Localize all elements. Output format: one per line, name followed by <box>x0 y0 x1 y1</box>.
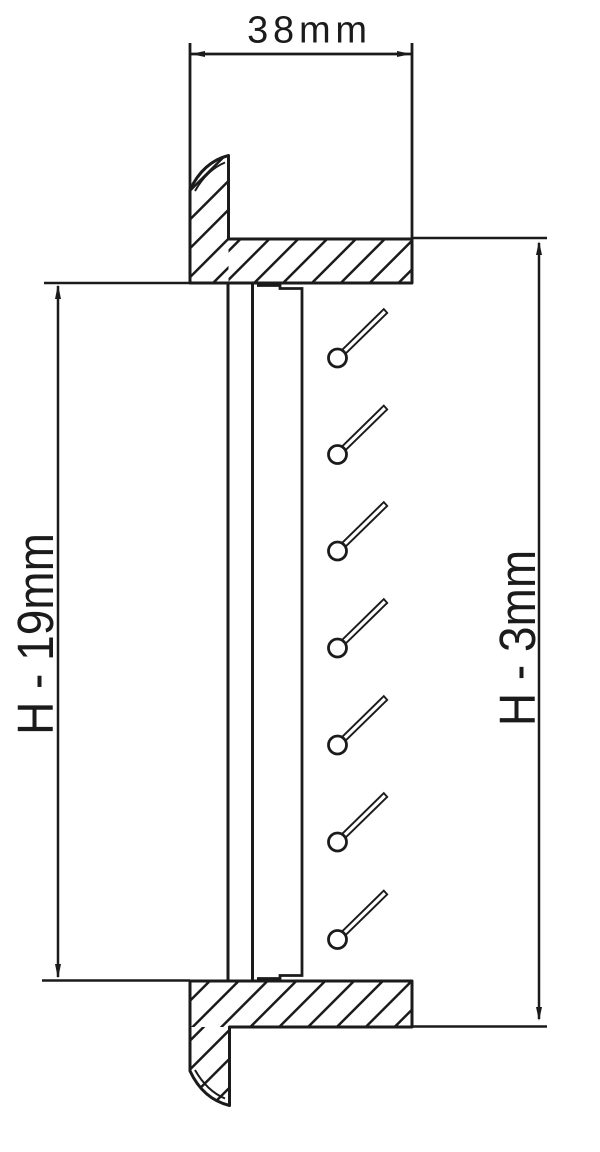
svg-text:H - 19mm: H - 19mm <box>8 533 65 735</box>
svg-text:H - 3mm: H - 3mm <box>490 550 547 726</box>
svg-text:38mm: 38mm <box>247 10 372 52</box>
